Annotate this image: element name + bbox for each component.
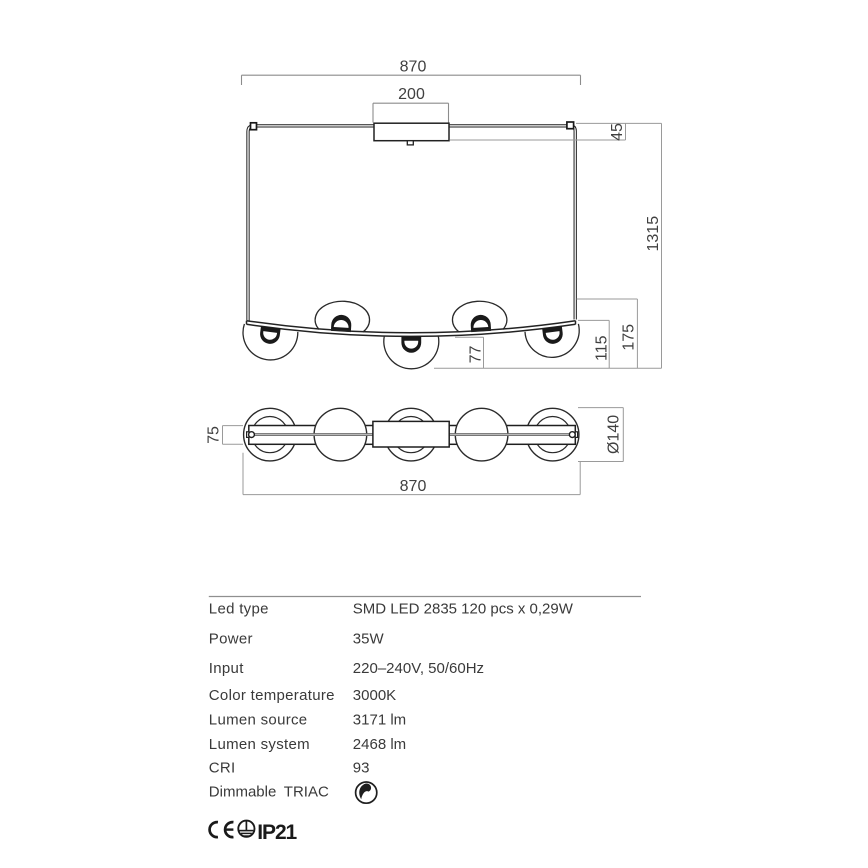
svg-text:115: 115 [594,335,611,361]
svg-text:1315: 1315 [645,216,662,252]
svg-text:Ø140: Ø140 [606,415,623,454]
svg-text:175: 175 [620,324,637,351]
svg-text:75: 75 [206,426,223,444]
svg-text:IP21: IP21 [257,821,297,844]
svg-text:Lumen source: Lumen source [209,712,308,729]
svg-text:2468 lm: 2468 lm [353,736,406,753]
svg-text:870: 870 [400,59,427,76]
svg-text:3171 lm: 3171 lm [353,712,406,729]
svg-text:CRI: CRI [209,760,236,777]
svg-text:Color temperature: Color temperature [209,687,335,704]
svg-text:93: 93 [353,760,370,777]
svg-text:3000K: 3000K [353,687,396,704]
svg-text:Power: Power [209,631,253,648]
svg-text:870: 870 [400,478,427,495]
svg-text:77: 77 [467,346,484,364]
svg-text:35W: 35W [353,631,385,648]
svg-text:SMD LED 2835 120 pcs x 0,29W: SMD LED 2835 120 pcs x 0,29W [353,601,574,618]
svg-text:220–240V, 50/60Hz: 220–240V, 50/60Hz [353,660,484,677]
svg-text:Lumen system: Lumen system [209,736,310,753]
svg-text:Input: Input [209,660,244,677]
svg-text:200: 200 [398,86,425,103]
svg-text:Led type: Led type [209,601,269,618]
svg-text:Dimmable TRIAC: Dimmable TRIAC [209,784,329,801]
svg-text:45: 45 [609,123,626,141]
